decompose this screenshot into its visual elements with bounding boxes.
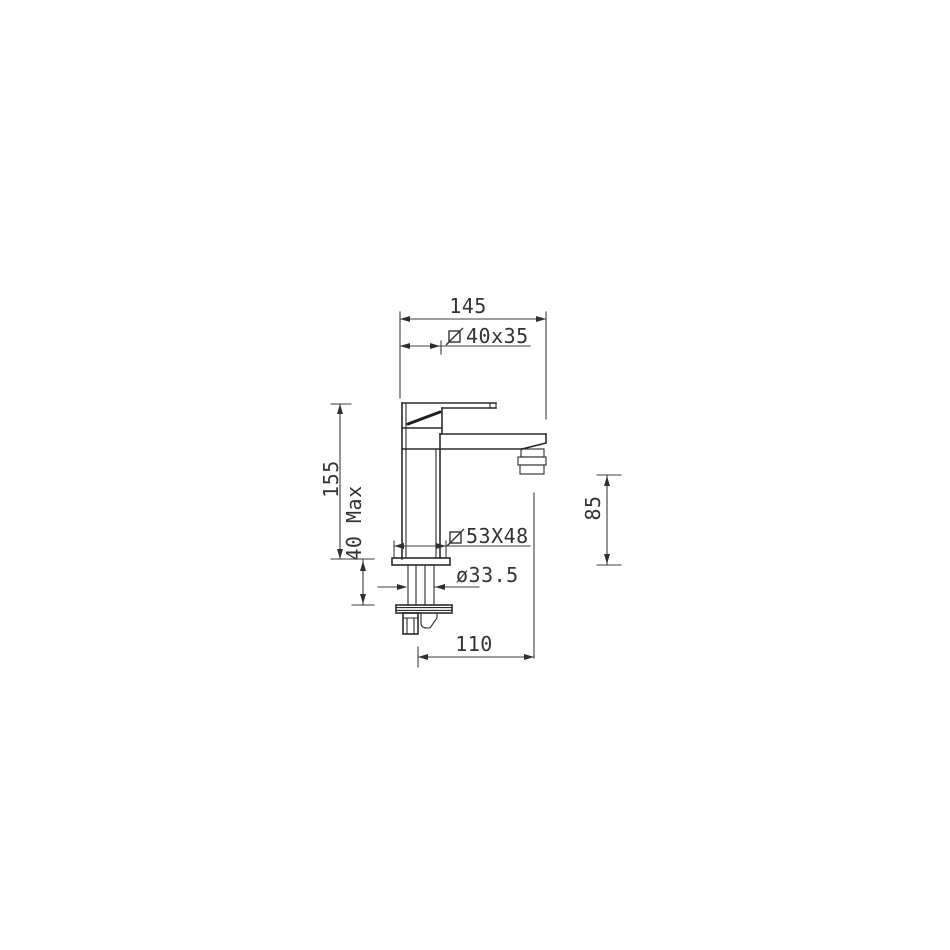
label-body-height: 155	[319, 460, 343, 498]
base-flange	[392, 558, 450, 565]
inlet-stub	[403, 613, 418, 634]
label-shank-diameter: ø33.5	[456, 563, 519, 587]
hose-cutaway	[421, 613, 437, 628]
mounting-nut	[396, 605, 452, 613]
faucet-dimension-drawing: 145 40x35 155 40 Max 53X48 ø33.5 85 110	[0, 0, 950, 950]
faucet-outline	[392, 403, 546, 634]
label-spout-reach: 110	[455, 632, 493, 656]
label-overall-width: 145	[449, 294, 487, 318]
label-body-section-text: 40x35	[466, 324, 529, 348]
label-deck-thickness: 40 Max	[342, 485, 366, 560]
square-section-icon	[446, 328, 463, 345]
label-base-section-text: 53X48	[466, 524, 529, 548]
square-section-icon	[447, 529, 464, 546]
label-spout-height: 85	[581, 495, 605, 520]
mounting-shank	[408, 565, 434, 605]
dim-deck-thickness	[352, 559, 374, 605]
technical-drawing-page: 145 40x35 155 40 Max 53X48 ø33.5 85 110	[0, 0, 950, 950]
label-body-section: 40x35	[446, 324, 529, 348]
label-base-section: 53X48	[447, 524, 529, 548]
handle-wedge	[408, 412, 440, 424]
dimension-labels: 145 40x35 155 40 Max 53X48 ø33.5 85 110	[319, 294, 605, 656]
dimension-lines	[331, 312, 621, 667]
aerator	[518, 449, 546, 474]
